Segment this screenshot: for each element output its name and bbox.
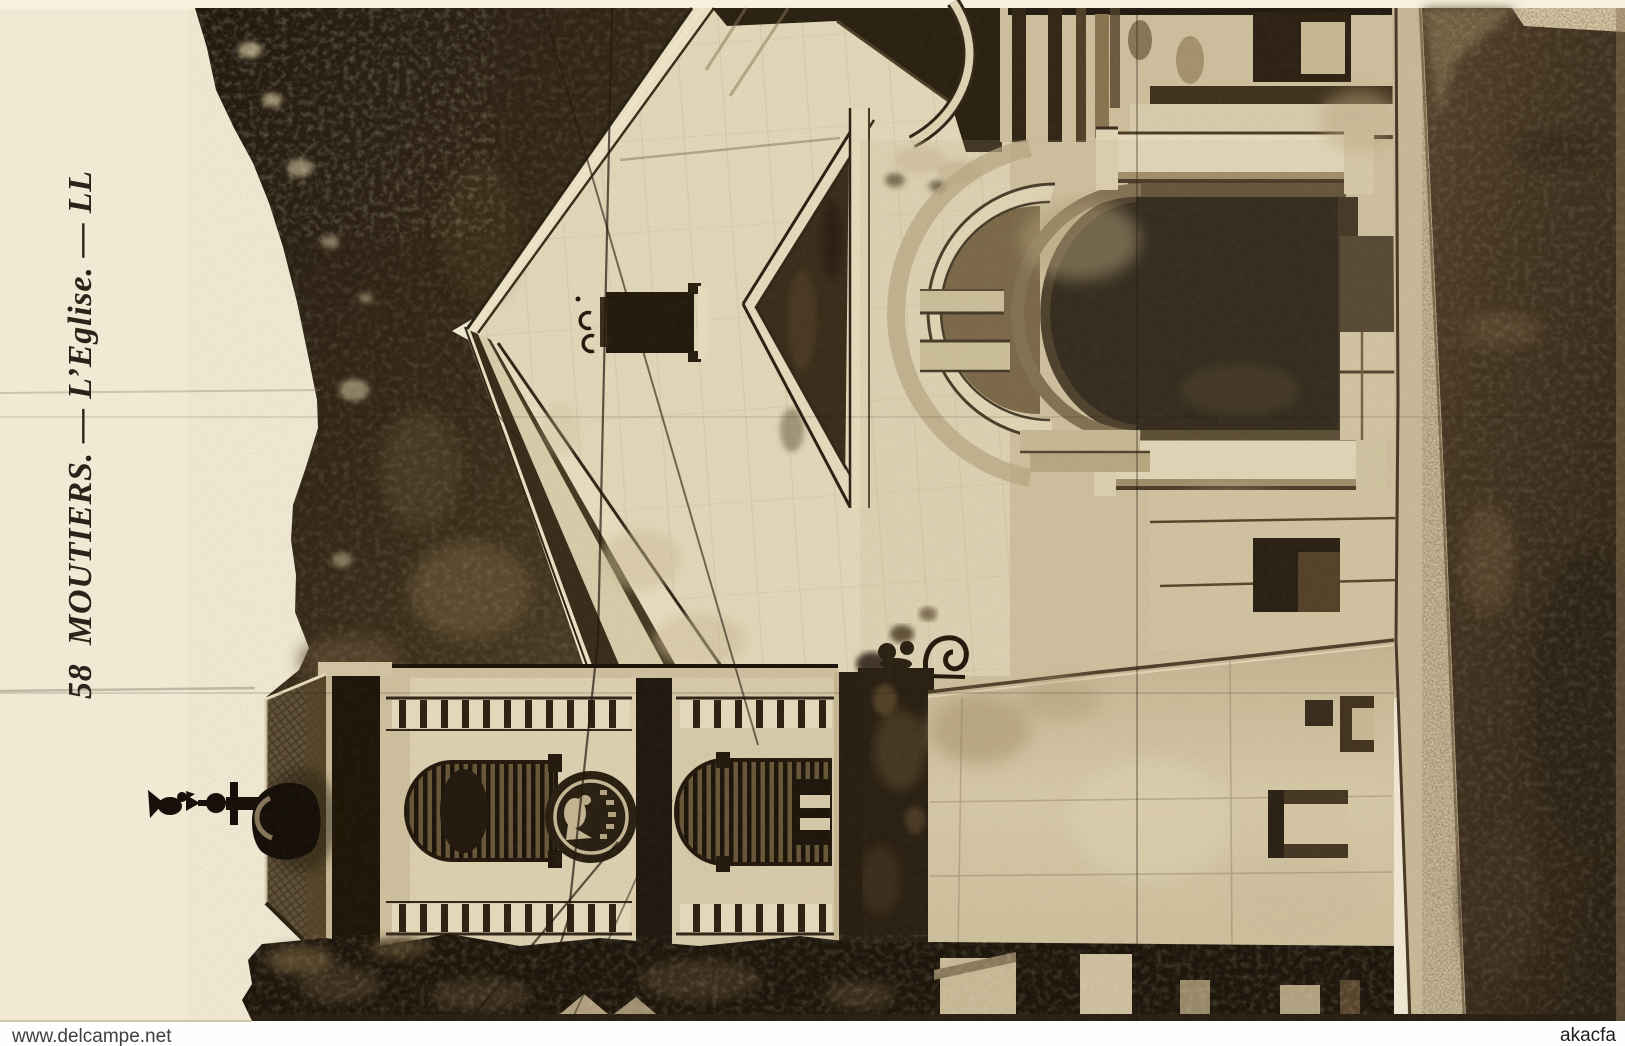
svg-text:akacfa: akacfa [1560,1025,1616,1046]
svg-text:www.delcampe.net: www.delcampe.net [11,1026,172,1046]
svg-text:58 MOUTIERS. — L’Eglise. — LL: 58 MOUTIERS. — L’Eglise. — LL [62,171,99,699]
